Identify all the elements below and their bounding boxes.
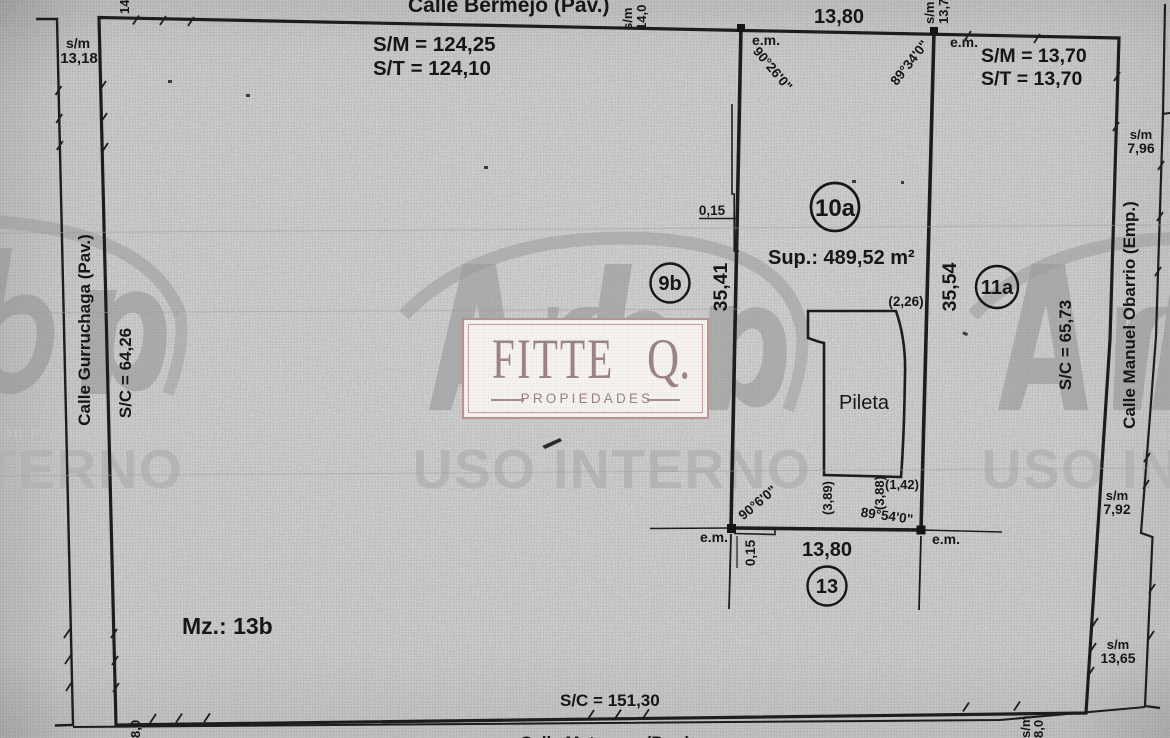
svg-text:e.m.: e.m. bbox=[950, 34, 978, 50]
svg-text:8,0: 8,0 bbox=[1031, 720, 1046, 738]
svg-text:9b: 9b bbox=[658, 273, 681, 295]
svg-text:S/C = 151,30: S/C = 151,30 bbox=[560, 691, 660, 710]
svg-text:(2,26): (2,26) bbox=[888, 294, 923, 309]
svg-text:e.m.: e.m. bbox=[700, 529, 728, 545]
svg-text:13,80: 13,80 bbox=[814, 6, 864, 28]
svg-text:14,05: 14,05 bbox=[117, 0, 132, 14]
svg-text:8,0: 8,0 bbox=[128, 720, 143, 738]
svg-text:e.m.: e.m. bbox=[932, 531, 960, 547]
svg-text:Mz.: 13b: Mz.: 13b bbox=[182, 613, 273, 639]
svg-text:13: 13 bbox=[816, 576, 838, 598]
svg-text:(1,42): (1,42) bbox=[885, 477, 919, 492]
svg-text:Calle Gurruchaga (Pav.): Calle Gurruchaga (Pav.) bbox=[75, 234, 94, 425]
svg-text:S/C = 64,26: S/C = 64,26 bbox=[116, 328, 135, 418]
svg-text:0,15: 0,15 bbox=[743, 539, 758, 566]
svg-text:s/m: s/m bbox=[922, 2, 937, 24]
svg-text:10a: 10a bbox=[815, 195, 856, 222]
svg-text:Calle Manuel Obarrio (Emp.): Calle Manuel Obarrio (Emp.) bbox=[1120, 201, 1139, 429]
svg-text:USO INTERNO: USO INTERNO bbox=[0, 438, 183, 500]
svg-text:13,7: 13,7 bbox=[936, 0, 951, 24]
svg-text:35,54: 35,54 bbox=[939, 262, 961, 311]
svg-text:0,15: 0,15 bbox=[699, 203, 726, 218]
svg-text:7,92: 7,92 bbox=[1103, 501, 1130, 517]
svg-text:7,96: 7,96 bbox=[1127, 140, 1154, 156]
svg-text:Calle Bermejo (Pav.): Calle Bermejo (Pav.) bbox=[408, 0, 610, 17]
svg-text:35,41: 35,41 bbox=[710, 262, 732, 311]
svg-text:S/T = 124,10: S/T = 124,10 bbox=[373, 57, 491, 80]
svg-text:13,80: 13,80 bbox=[802, 539, 852, 561]
svg-text:11a: 11a bbox=[981, 277, 1014, 299]
svg-text:e.m.: e.m. bbox=[752, 32, 780, 48]
svg-text:S/M = 124,25: S/M = 124,25 bbox=[373, 33, 496, 56]
svg-text:s/m: s/m bbox=[66, 35, 90, 51]
svg-text:(3,89): (3,89) bbox=[820, 481, 835, 515]
svg-text:13,18: 13,18 bbox=[60, 50, 98, 67]
svg-text:S/M = 13,70: S/M = 13,70 bbox=[981, 45, 1087, 67]
svg-text:S/C = 65,73: S/C = 65,73 bbox=[1056, 300, 1075, 390]
svg-text:s/m: s/m bbox=[620, 8, 635, 30]
svg-text:Sup.: 489,52 m²: Sup.: 489,52 m² bbox=[768, 247, 915, 269]
svg-text:13,65: 13,65 bbox=[1100, 650, 1135, 666]
svg-text:Calle Maturana (Pav.): Calle Maturana (Pav.) bbox=[520, 733, 691, 738]
svg-text:S/T = 13,70: S/T = 13,70 bbox=[981, 68, 1083, 90]
svg-text:Pileta: Pileta bbox=[839, 392, 890, 414]
svg-text:14,0: 14,0 bbox=[634, 5, 649, 30]
